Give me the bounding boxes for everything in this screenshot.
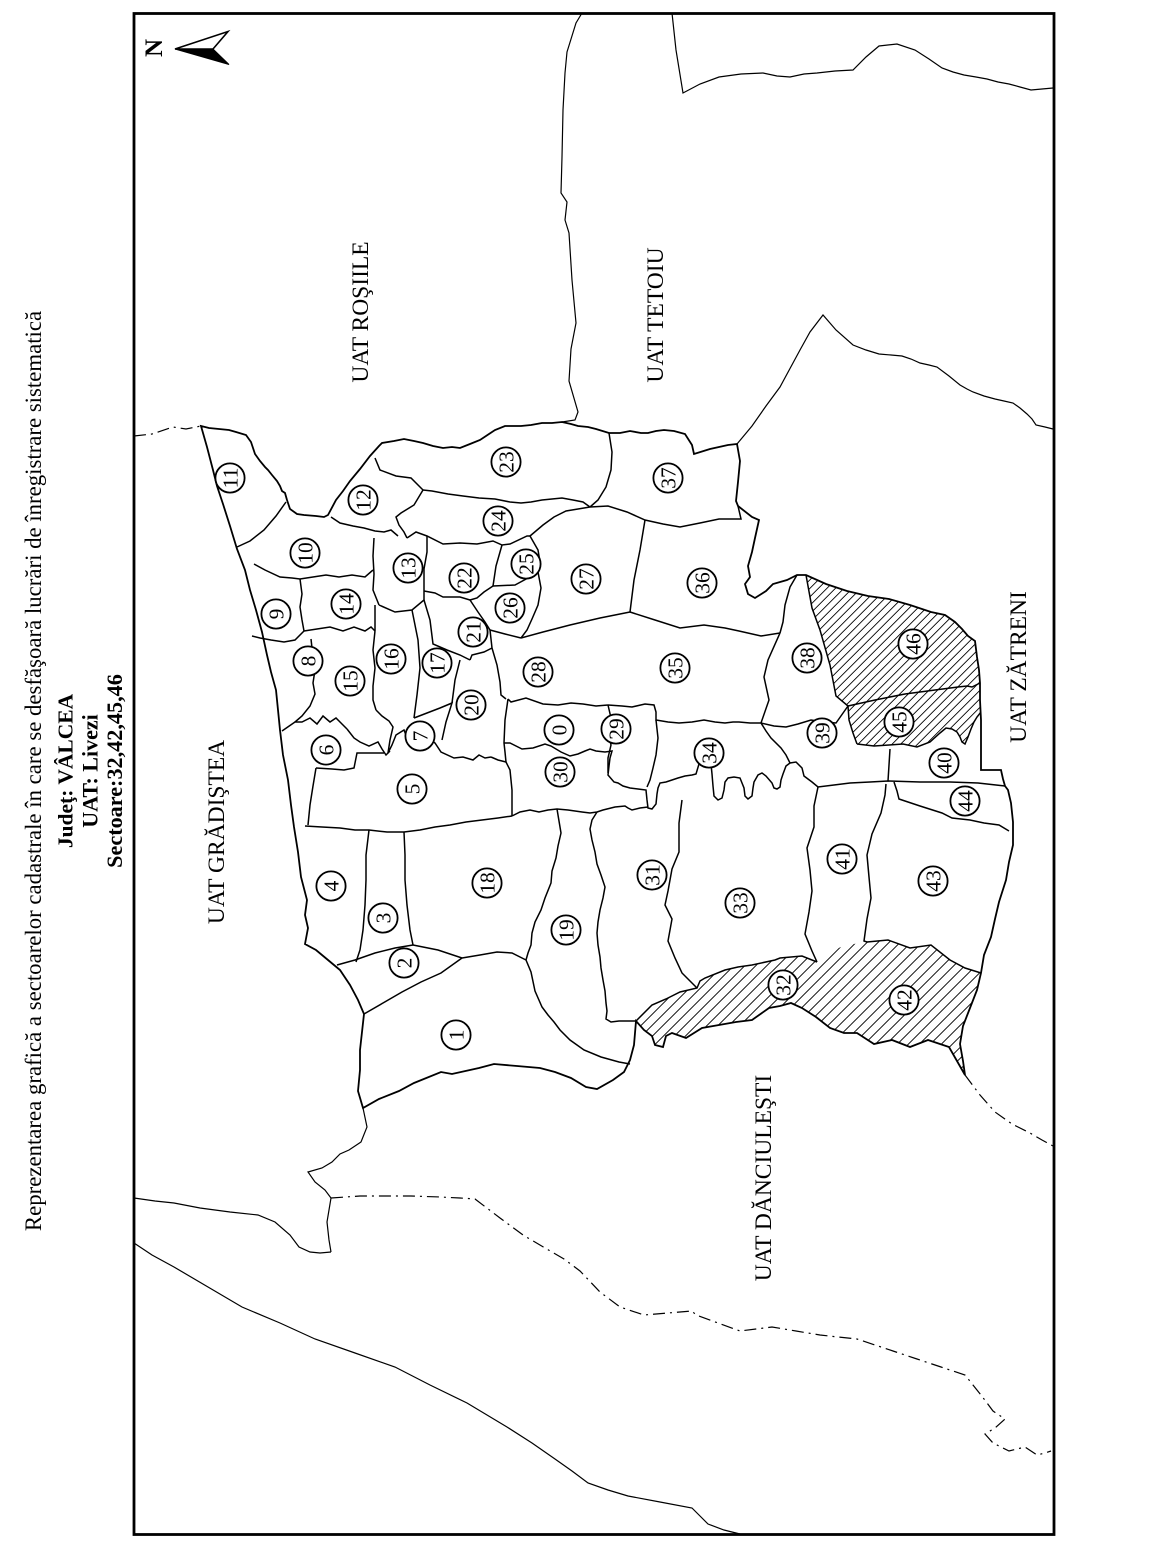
svg-text:15: 15 <box>339 670 363 692</box>
svg-text:4: 4 <box>320 880 344 891</box>
svg-text:29: 29 <box>605 718 629 740</box>
svg-text:Judeţ: VÂLCEA: Judeţ: VÂLCEA <box>54 693 78 848</box>
svg-text:9: 9 <box>265 609 289 620</box>
svg-text:13: 13 <box>397 557 421 579</box>
svg-text:10: 10 <box>294 542 318 564</box>
svg-text:42: 42 <box>893 989 917 1011</box>
svg-text:33: 33 <box>729 892 753 914</box>
svg-text:36: 36 <box>691 572 715 594</box>
svg-text:32: 32 <box>772 974 796 996</box>
svg-text:3: 3 <box>372 913 396 924</box>
svg-text:21: 21 <box>462 621 486 643</box>
svg-text:6: 6 <box>315 744 339 755</box>
svg-text:2: 2 <box>393 958 417 969</box>
svg-text:24: 24 <box>487 510 511 532</box>
svg-text:UAT ZĂTRENI: UAT ZĂTRENI <box>1006 591 1032 743</box>
svg-text:14: 14 <box>335 593 359 615</box>
svg-text:46: 46 <box>902 633 926 655</box>
svg-text:N: N <box>141 39 168 57</box>
svg-text:17: 17 <box>426 652 450 674</box>
svg-text:31: 31 <box>641 864 665 886</box>
svg-text:43: 43 <box>922 870 946 892</box>
svg-text:19: 19 <box>555 919 579 941</box>
svg-text:UAT: Livezi: UAT: Livezi <box>78 714 103 827</box>
svg-text:UAT TETOIU: UAT TETOIU <box>643 247 669 382</box>
svg-text:7: 7 <box>409 730 433 741</box>
svg-text:27: 27 <box>575 568 599 590</box>
svg-text:11: 11 <box>219 468 243 489</box>
svg-text:18: 18 <box>476 872 500 894</box>
svg-text:25: 25 <box>515 553 539 575</box>
svg-text:8: 8 <box>297 656 321 667</box>
svg-text:40: 40 <box>933 752 957 774</box>
svg-text:23: 23 <box>495 451 519 473</box>
svg-text:UAT GRĂDIŞTEA: UAT GRĂDIŞTEA <box>204 740 230 924</box>
svg-text:44: 44 <box>954 790 978 812</box>
svg-text:12: 12 <box>352 489 376 511</box>
svg-text:37: 37 <box>657 467 681 489</box>
svg-text:38: 38 <box>796 647 820 669</box>
svg-text:39: 39 <box>811 722 835 744</box>
svg-text:26: 26 <box>499 597 523 619</box>
svg-text:Sectoare:32,42,45,46: Sectoare:32,42,45,46 <box>102 674 127 868</box>
svg-text:30: 30 <box>549 761 573 783</box>
svg-text:UAT ROŞIILE: UAT ROŞIILE <box>348 241 374 382</box>
svg-text:34: 34 <box>698 742 722 764</box>
svg-text:45: 45 <box>888 711 912 733</box>
svg-text:Reprezentarea grafică a sectoa: Reprezentarea grafică a sectoarelor cada… <box>21 311 46 1231</box>
svg-text:41: 41 <box>831 848 855 870</box>
svg-text:0: 0 <box>548 725 572 736</box>
svg-text:5: 5 <box>401 784 425 795</box>
svg-text:20: 20 <box>460 694 484 716</box>
svg-text:16: 16 <box>380 648 404 670</box>
svg-text:UAT DĂNCIULEŞTI: UAT DĂNCIULEŞTI <box>751 1075 777 1282</box>
svg-text:28: 28 <box>527 661 551 683</box>
svg-text:22: 22 <box>453 567 477 589</box>
svg-text:1: 1 <box>445 1030 469 1041</box>
svg-text:35: 35 <box>664 657 688 679</box>
